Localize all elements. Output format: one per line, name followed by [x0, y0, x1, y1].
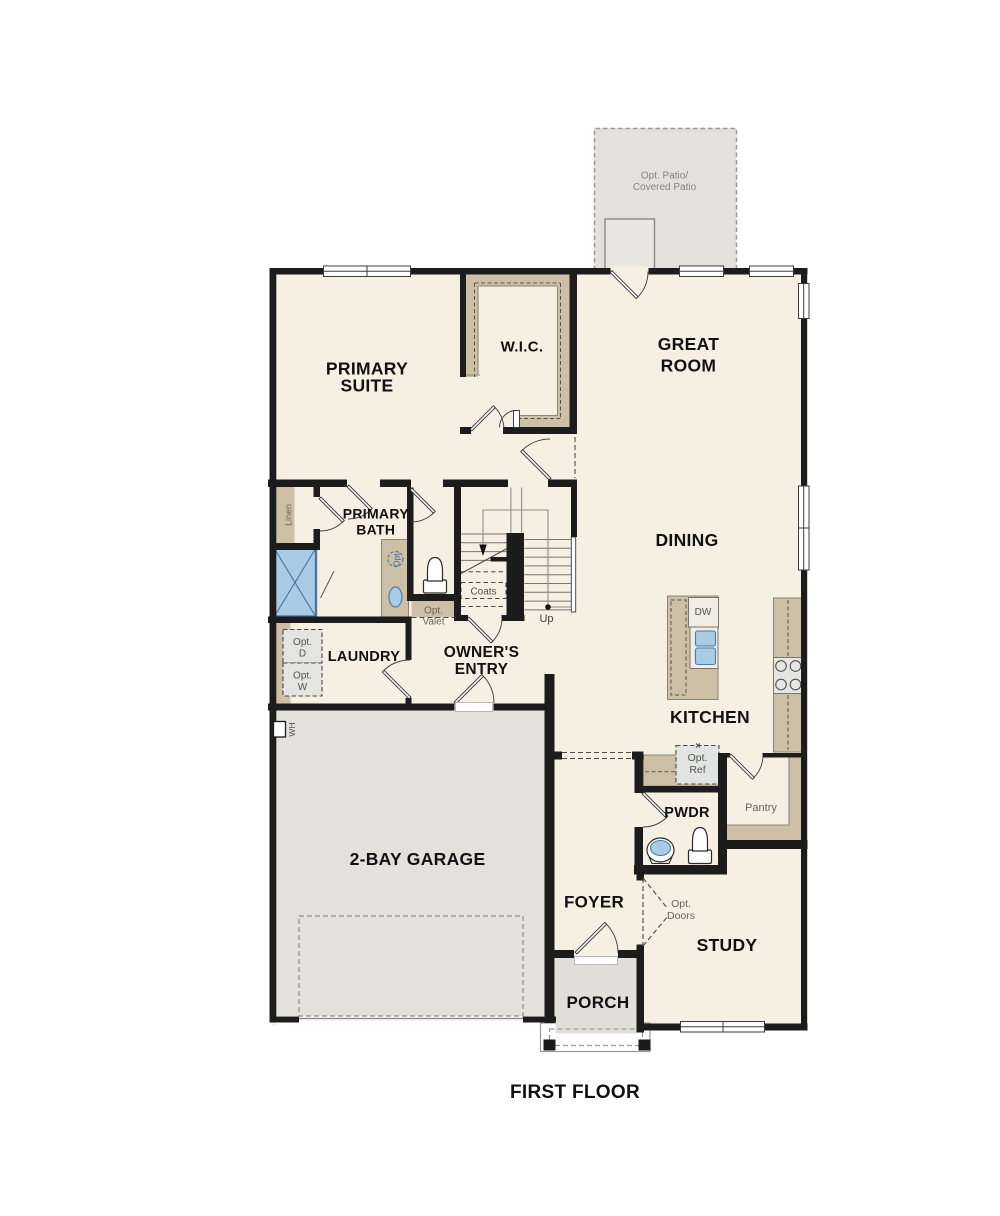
svg-text:SUITE: SUITE — [340, 376, 393, 396]
svg-text:Doors: Doors — [667, 910, 695, 922]
svg-text:WH: WH — [287, 722, 297, 736]
svg-text:Opt.: Opt. — [392, 551, 402, 567]
svg-text:Opt.: Opt. — [293, 671, 312, 682]
svg-text:OWNER'S: OWNER'S — [444, 644, 520, 661]
svg-text:W.I.C.: W.I.C. — [501, 339, 544, 356]
svg-text:Opt.: Opt. — [671, 898, 691, 910]
svg-text:2-BAY GARAGE: 2-BAY GARAGE — [350, 849, 486, 869]
svg-text:D: D — [299, 649, 306, 660]
svg-text:PWDR: PWDR — [664, 805, 710, 821]
svg-text:ENTRY: ENTRY — [455, 661, 509, 678]
svg-text:DINING: DINING — [655, 530, 718, 550]
svg-text:DW: DW — [695, 607, 712, 618]
svg-text:KITCHEN: KITCHEN — [670, 707, 750, 727]
svg-text:Opt.: Opt. — [293, 637, 312, 648]
svg-text:PRIMARY: PRIMARY — [343, 506, 410, 522]
svg-text:Opt.: Opt. — [688, 752, 708, 764]
svg-text:Pantry: Pantry — [745, 802, 777, 814]
svg-text:Up: Up — [539, 613, 553, 625]
svg-text:Coats: Coats — [470, 587, 496, 598]
svg-text:LAUNDRY: LAUNDRY — [328, 649, 400, 665]
svg-text:Covered Patio: Covered Patio — [633, 182, 697, 193]
svg-text:BATH: BATH — [356, 522, 395, 538]
svg-text:FIRST FLOOR: FIRST FLOOR — [510, 1082, 640, 1103]
svg-text:Valet: Valet — [422, 617, 444, 628]
svg-text:GREAT: GREAT — [658, 334, 719, 354]
svg-text:Ref: Ref — [689, 764, 705, 776]
svg-text:PORCH: PORCH — [567, 993, 630, 1012]
svg-text:W: W — [298, 682, 308, 693]
svg-text:STUDY: STUDY — [697, 935, 758, 955]
svg-text:Opt. Patio/: Opt. Patio/ — [641, 171, 688, 182]
svg-text:Linen: Linen — [284, 504, 294, 526]
svg-text:FOYER: FOYER — [564, 893, 624, 912]
svg-text:Opt.: Opt. — [424, 606, 443, 617]
svg-text:ROOM: ROOM — [661, 356, 717, 376]
